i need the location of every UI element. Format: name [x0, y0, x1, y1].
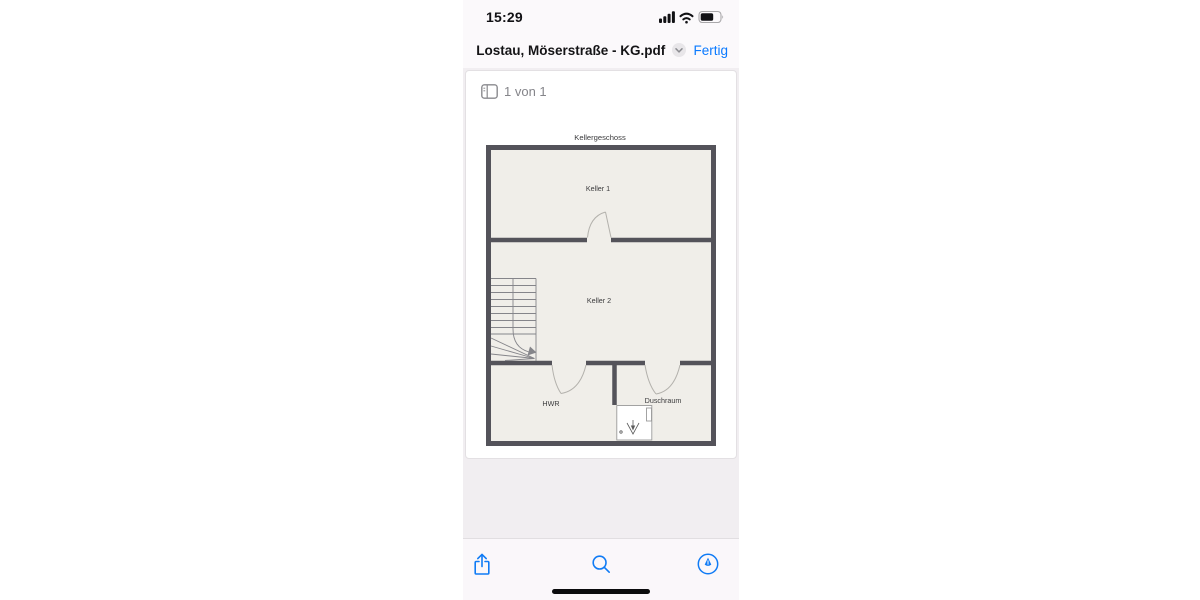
share-icon — [472, 552, 492, 576]
pdf-page: 1 von 1 Kellergeschoss — [465, 70, 737, 459]
battery-icon — [699, 12, 723, 23]
room-label-keller1: Keller 1 — [586, 184, 610, 193]
page-count-indicator[interactable]: 1 von 1 — [481, 84, 547, 99]
done-button[interactable]: Fertig — [693, 43, 739, 58]
markup-button[interactable] — [691, 547, 725, 581]
sidebar-thumbnails-icon — [481, 84, 498, 99]
clock-time: 15:29 — [486, 9, 523, 25]
phone-screen: 15:29 Lostau, Möserstraße - KG.pdf — [463, 0, 739, 600]
search-icon — [591, 554, 611, 574]
cellular-signal-icon — [659, 11, 675, 23]
nav-bar: Lostau, Möserstraße - KG.pdf Fertig — [463, 32, 739, 68]
room-label-duschraum: Duschraum — [645, 396, 682, 405]
room-label-keller2: Keller 2 — [587, 296, 611, 305]
search-button[interactable] — [584, 547, 618, 581]
plan-title: Kellergeschoss — [574, 133, 626, 142]
shower-tray — [617, 406, 652, 441]
document-title: Lostau, Möserstraße - KG.pdf — [476, 43, 665, 58]
chevron-down-icon — [675, 48, 683, 53]
floor-plan: Kellergeschoss — [480, 129, 720, 451]
home-indicator[interactable] — [552, 589, 650, 594]
status-icons — [659, 9, 727, 25]
share-button[interactable] — [465, 547, 499, 581]
room-label-hwr: HWR — [542, 399, 559, 408]
document-title-group: Lostau, Möserstraße - KG.pdf — [463, 43, 693, 58]
wifi-icon — [681, 14, 693, 24]
page-count-label: 1 von 1 — [504, 84, 547, 99]
title-menu-button[interactable] — [672, 43, 686, 57]
bottom-toolbar — [463, 538, 739, 600]
document-scroll-area[interactable]: 1 von 1 Kellergeschoss — [463, 68, 739, 538]
status-bar: 15:29 — [463, 0, 739, 32]
markup-pen-icon — [696, 552, 720, 576]
